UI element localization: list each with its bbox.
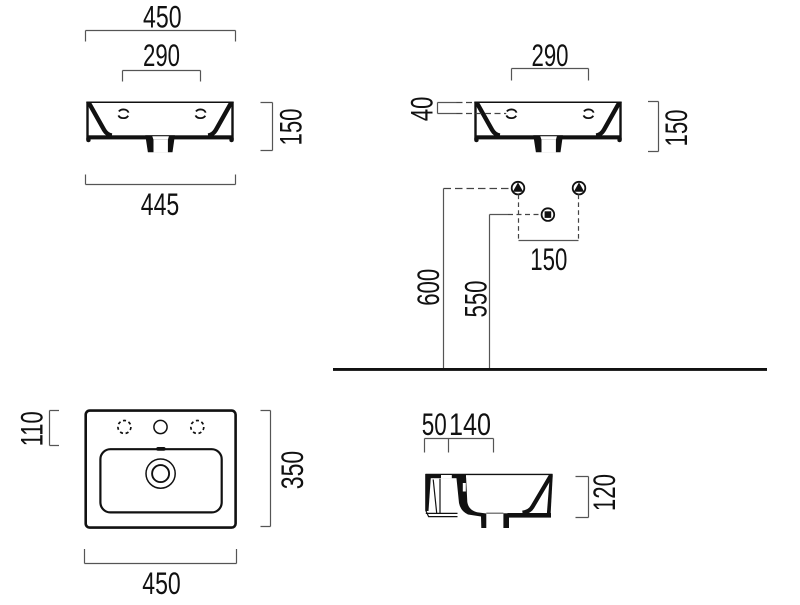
svg-text:350: 350 [274,451,310,490]
svg-text:140: 140 [449,406,491,442]
svg-text:40: 40 [403,97,439,122]
svg-text:150: 150 [273,109,309,146]
svg-text:450: 450 [143,0,182,35]
svg-text:120: 120 [586,474,622,511]
svg-text:290: 290 [532,37,569,73]
svg-text:150: 150 [530,241,567,277]
svg-text:150: 150 [658,110,694,147]
svg-text:290: 290 [143,37,180,73]
svg-text:550: 550 [457,281,493,318]
svg-text:110: 110 [14,411,50,446]
svg-text:445: 445 [141,186,180,222]
svg-text:450: 450 [142,565,181,600]
svg-text:50: 50 [422,406,447,442]
svg-text:600: 600 [410,269,446,306]
